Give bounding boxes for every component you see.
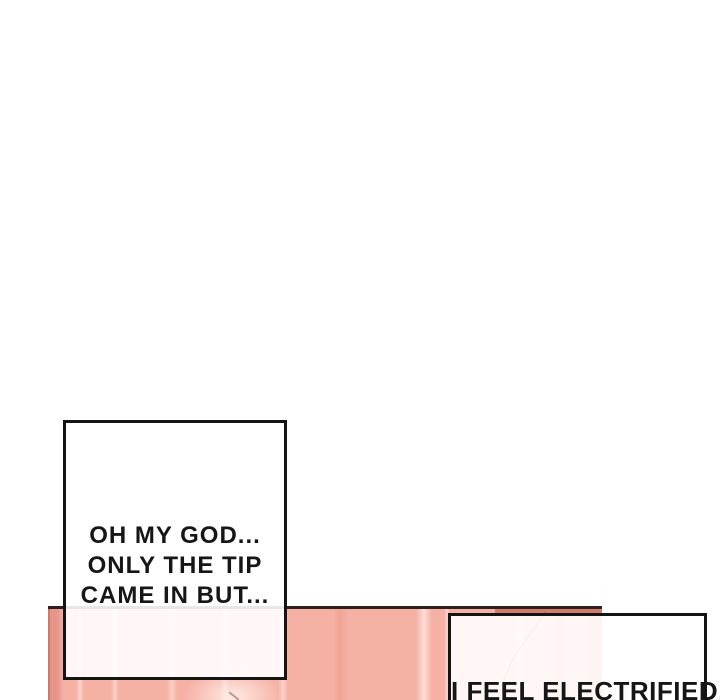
comic-page: OH MY GOD... ONLY THE TIP CAME IN BUT...… — [0, 0, 720, 700]
speech-bubble-2: I FEEL ELECTRIFIED. — [448, 613, 707, 700]
speech-line: OH MY GOD... — [66, 521, 284, 551]
speech-line: ONLY THE TIP — [66, 551, 284, 581]
speech-text-1: OH MY GOD... ONLY THE TIP CAME IN BUT... — [66, 521, 284, 611]
speech-line: CAME IN BUT... — [66, 581, 284, 611]
speech-bubble-1: OH MY GOD... ONLY THE TIP CAME IN BUT... — [63, 420, 287, 680]
speech-line: I FEEL ELECTRIFIED. — [451, 676, 704, 700]
speech-text-2: I FEEL ELECTRIFIED. — [451, 676, 704, 700]
